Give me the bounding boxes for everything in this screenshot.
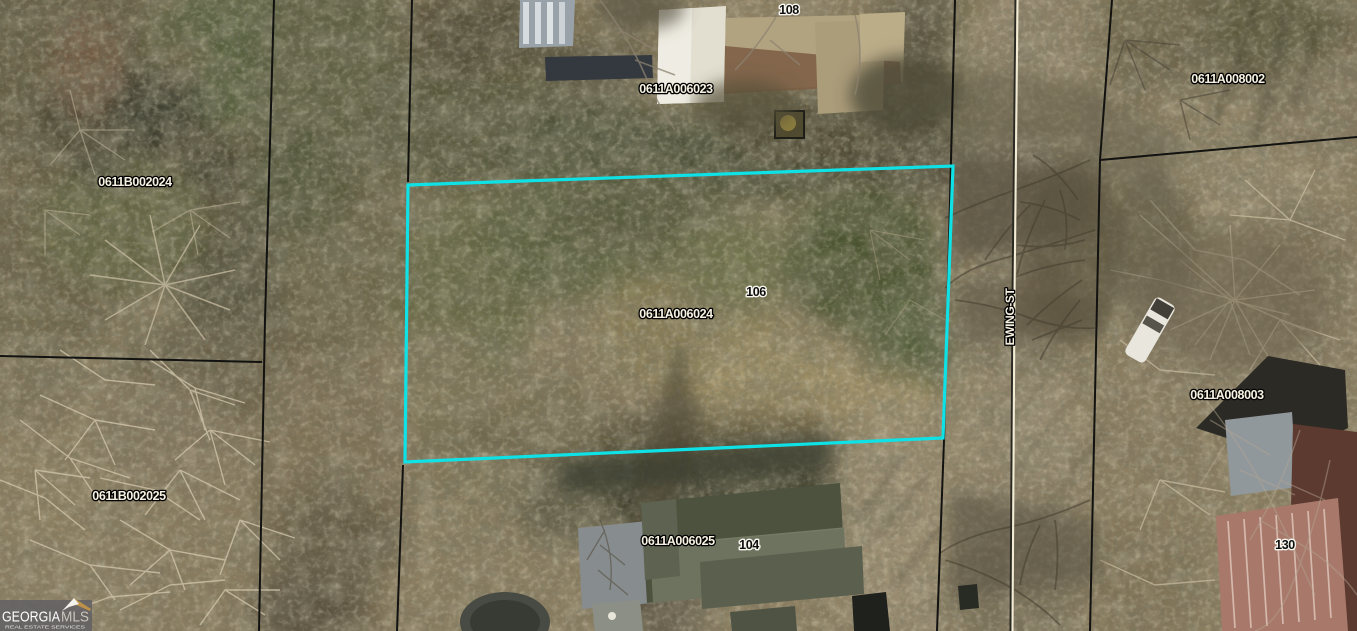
svg-text:MLS: MLS xyxy=(61,609,89,626)
svg-text:GEORGIA: GEORGIA xyxy=(2,609,60,626)
svg-text:0611A008002: 0611A008002 xyxy=(1191,72,1265,86)
svg-text:0611A006024: 0611A006024 xyxy=(639,307,713,321)
svg-text:0611B002025: 0611B002025 xyxy=(92,489,166,503)
svg-text:130: 130 xyxy=(1275,538,1295,552)
svg-text:0611B002024: 0611B002024 xyxy=(98,175,172,189)
svg-text:106: 106 xyxy=(746,285,766,299)
svg-text:0611A006023: 0611A006023 xyxy=(639,82,713,96)
svg-text:0611A006025: 0611A006025 xyxy=(641,534,715,548)
svg-text:104: 104 xyxy=(739,538,759,552)
svg-text:0611A008003: 0611A008003 xyxy=(1190,388,1264,402)
svg-text:EWING-ST: EWING-ST xyxy=(1003,288,1017,346)
svg-text:108: 108 xyxy=(779,3,799,17)
svg-text:REAL ESTATE SERVICES: REAL ESTATE SERVICES xyxy=(5,625,85,630)
